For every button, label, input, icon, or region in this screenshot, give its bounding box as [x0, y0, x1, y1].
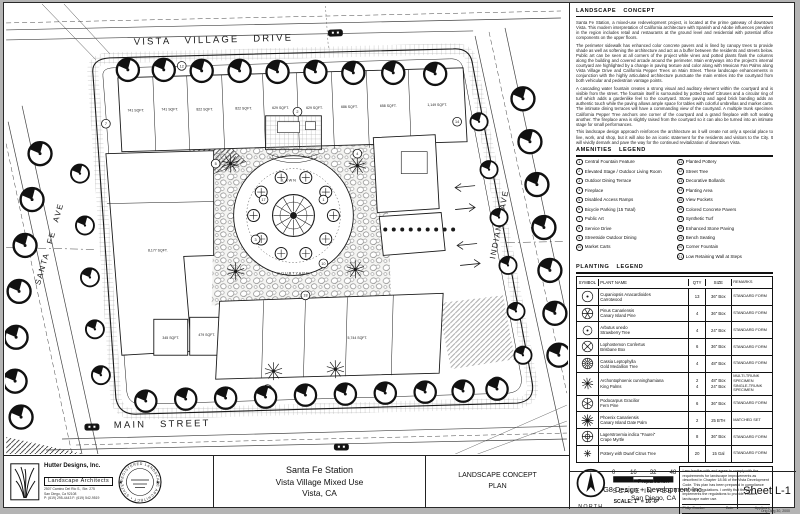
street-tree-icon [514, 347, 531, 364]
legend-item: 15View Pockets [677, 197, 773, 203]
plant-name: Cassia Leptophylla Gold Medallion Tree [599, 356, 690, 372]
legend-number: 12 [677, 168, 684, 175]
drawing-sheet: VISTA VILLAGE DRIVE SANTA FE AVE INDIANA… [3, 2, 795, 508]
firm-text: Hutter Designs, Inc. Landscape Architect… [44, 463, 113, 500]
planting-legend-section: PLANTING LEGEND SYMBOLPLANT NAMEQTYSIZER… [576, 264, 773, 462]
legend-number: 2 [576, 168, 583, 175]
legend-label: Central Fountain Feature [585, 159, 635, 164]
plant-qty: 13 [689, 289, 706, 305]
legend-label: Decorative Bollards [686, 178, 725, 183]
plant-size: 24" Box [706, 322, 732, 338]
street-tree-icon [375, 382, 396, 403]
concept-paragraph: A cascading water fountain creates a str… [576, 86, 773, 127]
plant-name: Arbutus unedo Strawberry Tree [599, 322, 690, 338]
amenities-column-right: 11Planted Pottery12Street Tree13Decorati… [677, 159, 773, 263]
plant-remarks: STANDARD FORM [732, 339, 772, 355]
legend-label: View Pockets [686, 197, 713, 202]
planting-title: PLANTING LEGEND [576, 264, 773, 270]
sqft-label: 822 SQFT. [196, 108, 213, 112]
sqft-label: 741 SQFT. [161, 108, 178, 112]
legend-number: 11 [677, 159, 684, 166]
street-tree-icon [92, 366, 110, 384]
legend-label: Elevated Stage / Outdoor Living Room [585, 169, 662, 174]
plant-remarks: STANDARD FORM [732, 289, 772, 305]
street-tree-icon [5, 326, 28, 349]
amenities-title: AMENITIES LEGEND [576, 147, 773, 153]
legend-item: 3Outdoor Dining Terrace [576, 178, 672, 184]
street-tree-icon [543, 302, 566, 325]
planting-table: SYMBOLPLANT NAMEQTYSIZEREMARKS Cupaniops… [576, 276, 773, 462]
street-tree-icon [117, 59, 139, 81]
street-tree-icon [382, 62, 404, 84]
legend-number: 21 [677, 253, 684, 260]
street-tree-icon [304, 61, 326, 83]
legend-label: Service Drive [585, 226, 612, 231]
legend-label: Planted Pottery [686, 159, 717, 164]
sqft-label: 5,744 SQFT. [348, 336, 368, 340]
plant-remarks: MULTI-TRUNK SPECIMEN SINGLE-TRUNK SPECIM… [732, 373, 772, 395]
project-subtitle: Vista Village Mixed Use [276, 477, 364, 489]
street-label-top: VISTA VILLAGE DRIVE [134, 32, 294, 47]
drawing-title-section: LANDSCAPE CONCEPT PLAN [425, 456, 569, 508]
legend-number: 16 [677, 206, 684, 213]
legend-number: 5 [576, 197, 583, 204]
project-name: Santa Fe Station [286, 464, 353, 477]
street-label-left: SANTA FE AVE [33, 202, 65, 286]
legend-item: 11Planted Pottery [677, 159, 773, 165]
site-plan-svg: VISTA VILLAGE DRIVE SANTA FE AVE INDIANA… [5, 4, 568, 454]
planting-row: Cassia Leptophylla Gold Medallion Tree44… [577, 355, 772, 372]
svg-text:17: 17 [261, 198, 265, 202]
legend-number: 8 [576, 225, 583, 232]
legend-number: 10 [576, 244, 583, 251]
title-block-right: Prepared for: G8 Design + Development In… [569, 471, 796, 509]
street-tree-icon [532, 216, 555, 239]
legend-label: Corner Fountain [686, 244, 719, 249]
client-section: Prepared for: G8 Design + Development In… [570, 472, 738, 509]
legend-label: Public Art [585, 216, 604, 221]
svg-text:4: 4 [356, 152, 358, 156]
legend-item: 8Service Drive [576, 226, 672, 232]
street-tree-icon [135, 390, 156, 411]
sqft-label: 822 SQFT. [235, 107, 252, 111]
planting-row: Pottery with Dwarf Citrus Tree2015 GalST… [577, 445, 772, 462]
plant-size: 48" Box [706, 356, 732, 372]
street-tree-icon [295, 384, 316, 405]
svg-text:REGISTERED LANDSCAPE ARCHITECT: REGISTERED LANDSCAPE ARCHITECT • STATE O… [120, 462, 160, 502]
plant-symbol-icon [577, 429, 599, 445]
planting-header-cell: QTY [689, 279, 706, 287]
plant-size: 15 Gal [706, 446, 732, 462]
plant-size: 36" Box [706, 429, 732, 445]
planting-row: Archontophoenix cunninghamiana King Palm… [577, 372, 772, 395]
street-tree-icon [215, 387, 236, 408]
plant-size: 36" Box [706, 396, 732, 412]
plant-size: 36" Box [706, 339, 732, 355]
plant-qty: 4 [689, 356, 706, 372]
plant-remarks: STANDARD FORM [732, 429, 772, 445]
legend-item: 20Corner Fountain [677, 244, 773, 250]
legend-label: Fireplace [585, 188, 604, 193]
svg-text:7: 7 [105, 122, 107, 126]
amenities-legend-section: AMENITIES LEGEND 1Central Fountain Featu… [576, 147, 773, 263]
legend-label: Outdoor Dining Terrace [585, 178, 631, 183]
plant-symbol-icon [577, 306, 599, 322]
plant-size: 36" Box [706, 289, 732, 305]
street-tree-icon [191, 60, 213, 82]
project-title-section: Santa Fe Station Vista Village Mixed Use… [213, 456, 425, 508]
legend-number: 19 [677, 235, 684, 242]
planting-header-cell: REMARKS [732, 279, 772, 287]
sheet-number: Sheet L-1 [738, 472, 796, 509]
sqft-label: 686 SQFT. [341, 105, 358, 109]
legend-number: 6 [576, 206, 583, 213]
plant-qty: 6 [689, 396, 706, 412]
street-tree-icon [29, 142, 52, 165]
street-tree-icon [266, 61, 288, 83]
street-tree-icon [5, 370, 27, 393]
street-tree-icon [547, 344, 568, 367]
rule [576, 16, 773, 18]
courtyard-label: COURTYARD [277, 271, 310, 275]
street-tree-icon [153, 59, 175, 81]
svg-text:1: 1 [322, 198, 324, 202]
legend-item: 1Central Fountain Feature [576, 159, 672, 165]
legend-item: 13Decorative Bollards [677, 178, 773, 184]
plant-qty: 2 4 [689, 373, 706, 395]
plant-qty: 8 [689, 429, 706, 445]
sqft-label: 658 SQFT. [380, 104, 397, 108]
legend-item: 10Market Carts [576, 244, 672, 250]
svg-text:18: 18 [303, 294, 307, 298]
parking-hatch [6, 437, 84, 454]
plant-name: Lagerstroemia indica "Faurei" Crape Myrt… [599, 429, 690, 445]
legend-number: 14 [677, 187, 684, 194]
legend-item: 12Street Tree [677, 169, 773, 175]
street-tree-icon [10, 406, 33, 429]
plant-remarks: STANDARD FORM [732, 356, 772, 372]
svg-text:14: 14 [455, 120, 459, 124]
project-location: Vista, CA [302, 488, 337, 500]
street-tree-icon [21, 188, 44, 211]
rule [576, 155, 773, 157]
legend-item: 7Public Art [576, 216, 672, 222]
client-name: G8 Design + Development Inc. [603, 485, 704, 495]
plant-symbol-icon [577, 412, 599, 428]
legend-number: 7 [576, 216, 583, 223]
planting-row: Phoenix Canariensis Canary Island Date P… [577, 411, 772, 428]
street-tree-icon [490, 209, 507, 226]
street-tree-icon [229, 60, 251, 82]
legend-number: 3 [576, 178, 583, 185]
sqft-label: 629 SQFT. [306, 106, 323, 110]
sqft-label: 8,177 SQFT. [148, 248, 168, 252]
sqft-label: 1,149 SQFT. [427, 103, 447, 107]
plant-size: 25 BTH [706, 412, 732, 428]
legend-label: Street Tree [686, 169, 708, 174]
street-tree-icon [470, 113, 487, 130]
legend-number: 13 [677, 178, 684, 185]
sqft-label: 741 SQFT. [128, 109, 145, 113]
street-tree-icon [76, 216, 94, 234]
concept-paragraph: This landscape design approach reinforce… [576, 129, 773, 144]
plant-name: Archontophoenix cunninghamiana King Palm… [599, 373, 690, 395]
legend-item: 18Enhanced Stone Paving [677, 226, 773, 232]
firm-address: 2507 Camino Del Rio S., Ste. 275 San Die… [44, 487, 113, 500]
legend-label: Bicycle Parking (15 Total) [585, 207, 636, 212]
scanned-plan-sheet: { "plan": { "streets": { "top": "VISTA V… [0, 0, 800, 514]
sqft-label: 345 SQFT. [162, 336, 179, 340]
plant-remarks: STANDARD FORM [732, 306, 772, 322]
planting-header-cell: PLANT NAME [599, 279, 690, 287]
svg-text:10: 10 [321, 262, 325, 266]
legend-number: 9 [576, 235, 583, 242]
planting-row: Podocarpus Gracilior Fern Pine636" BoxST… [577, 395, 772, 412]
plant-symbol-icon [577, 373, 599, 395]
se-paving-hatch [437, 295, 515, 369]
sqft-label: 479 SQFT. [198, 333, 215, 337]
plant-symbol-icon [577, 322, 599, 338]
street-tree-icon [486, 378, 507, 399]
street-label-bottom: MAIN STREET [114, 418, 211, 431]
notes-panel: LANDSCAPE CONCEPT Santa Fe Station, a mi… [569, 3, 796, 471]
street-tree-icon [342, 62, 364, 84]
legend-label: Disabled Access Ramps [585, 197, 634, 202]
street-tree-icon [518, 130, 541, 153]
plant-remarks: STANDARD FORM [732, 446, 772, 462]
svg-text:12: 12 [180, 64, 184, 68]
drawing-title-line1: LANDSCAPE CONCEPT [458, 471, 537, 482]
street-tree-icon [538, 259, 561, 282]
plant-remarks: STANDARD FORM [732, 322, 772, 338]
title-block-left: Hutter Designs, Inc. Landscape Architect… [4, 455, 569, 508]
legend-label: Streetside Outdoor Dining [585, 235, 637, 240]
legend-item: 19Bench Seating [677, 235, 773, 241]
street-tree-icon [71, 165, 89, 183]
plant-qty: 20 [689, 446, 706, 462]
plant-symbol-icon [577, 446, 599, 462]
legend-item: 6Bicycle Parking (15 Total) [576, 207, 672, 213]
plant-qty: 6 [689, 339, 706, 355]
street-tree-icon [81, 268, 99, 286]
legend-label: Market Carts [585, 244, 611, 249]
license-stamp-icon: REGISTERED LANDSCAPE ARCHITECT • STATE O… [117, 459, 163, 505]
legend-number: 1 [576, 159, 583, 166]
legend-number: 15 [677, 197, 684, 204]
legend-item: 9Streetside Outdoor Dining [576, 235, 672, 241]
plant-name: Pottery with Dwarf Citrus Tree [599, 446, 690, 462]
legend-item: 4Fireplace [576, 188, 672, 194]
plant-name: Phoenix Canariensis Canary Island Date P… [599, 412, 690, 428]
planting-header-cell: SIZE [706, 279, 732, 287]
landscape-concept-section: LANDSCAPE CONCEPT Santa Fe Station, a mi… [576, 8, 773, 145]
legend-item: 14Planting Area [677, 188, 773, 194]
street-tree-icon [175, 388, 196, 409]
original-drawing-note: Orig Dwg 30, 2000 [761, 509, 790, 513]
planting-row: Lophostemon Confertus Brisbane Box636" B… [577, 338, 772, 355]
legend-label: Planting Area [686, 188, 713, 193]
planting-row: Lagerstroemia indica "Faurei" Crape Myrt… [577, 428, 772, 445]
svg-text:3: 3 [255, 238, 257, 242]
plant-size: 36" Box [706, 306, 732, 322]
svg-text:5: 5 [215, 162, 217, 166]
planting-row: Pinus Canariensis Canary Island Pine436"… [577, 305, 772, 322]
amenities-column-left: 1Central Fountain Feature2Elevated Stage… [576, 159, 672, 263]
planting-header-cell: SYMBOL [577, 279, 599, 287]
street-tree-icon [255, 386, 276, 407]
client-location: San Diego, CA [631, 495, 676, 502]
legend-number: 4 [576, 187, 583, 194]
legend-label: Enhanced Stone Paving [686, 226, 734, 231]
plant-remarks: STANDARD FORM [732, 396, 772, 412]
legend-number: 18 [677, 225, 684, 232]
firm-name: Hutter Designs, Inc. [44, 463, 113, 469]
street-tree-icon [452, 380, 473, 401]
street-tree-icon [424, 63, 446, 85]
plant-name: Podocarpus Gracilior Fern Pine [599, 396, 690, 412]
legend-item: 21Low Retaining Wall at Steps [677, 254, 773, 260]
site-plan: VISTA VILLAGE DRIVE SANTA FE AVE INDIANA… [5, 4, 568, 454]
firm-type: Landscape Architects [44, 477, 113, 486]
firm-section: Hutter Designs, Inc. Landscape Architect… [4, 456, 213, 508]
legend-item: 17Synthetic Turf [677, 216, 773, 222]
street-tree-icon [525, 173, 548, 196]
plant-qty: 2 [689, 412, 706, 428]
rule [576, 272, 773, 274]
street-tree-icon [335, 383, 356, 404]
legend-label: Low Retaining Wall at Steps [686, 254, 742, 259]
street-tree-icon [507, 303, 524, 320]
planting-row: Arbutus unedo Strawberry Tree424" BoxSTA… [577, 321, 772, 338]
concept-paragraph: The perimeter sidewalk has enhanced colo… [576, 43, 773, 84]
planting-row: Cupaniopsis Anacardioides Carrotwood1336… [577, 288, 772, 305]
plant-name: Pinus Canariensis Canary Island Pine [599, 306, 690, 322]
legend-label: Synthetic Turf [686, 216, 714, 221]
street-tree-icon [415, 381, 436, 402]
plant-remarks: MATCHED SET [732, 412, 772, 428]
legend-number: 17 [677, 216, 684, 223]
plant-symbol-icon [577, 396, 599, 412]
plant-qty: 4 [689, 306, 706, 322]
plant-symbol-icon [577, 356, 599, 372]
legend-number: 20 [677, 244, 684, 251]
svg-text:2: 2 [296, 110, 298, 114]
firm-logo-icon [10, 463, 40, 501]
plant-symbol-icon [577, 289, 599, 305]
concept-title: LANDSCAPE CONCEPT [576, 8, 773, 14]
drawing-title-line2: PLAN [488, 482, 506, 493]
legend-item: 16Colored Concrete Pavers [677, 207, 773, 213]
legend-item: 2Elevated Stage / Outdoor Living Room [576, 169, 672, 175]
sqft-label: 629 SQFT. [272, 106, 289, 110]
legend-item: 5Disabled Access Ramps [576, 197, 672, 203]
plant-size: 48" Box 24" Box [706, 373, 732, 395]
courtyard-label: LAWN [282, 179, 297, 183]
bollard-dots [383, 228, 455, 232]
svg-text:★: ★ [119, 480, 124, 486]
plant-symbol-icon [577, 339, 599, 355]
street-tree-icon [480, 161, 497, 178]
legend-label: Bench Seating [686, 235, 715, 240]
concept-paragraph: Santa Fe Station, a mixed-use redevelopm… [576, 20, 773, 40]
legend-label: Colored Concrete Pavers [686, 207, 737, 212]
street-tree-icon [512, 87, 535, 110]
plant-name: Cupaniopsis Anacardioides Carrotwood [599, 289, 690, 305]
planting-table-header: SYMBOLPLANT NAMEQTYSIZEREMARKS [577, 277, 772, 288]
street-tree-icon [8, 280, 31, 303]
street-tree-icon [14, 234, 37, 257]
plant-qty: 4 [689, 322, 706, 338]
street-tree-icon [86, 320, 104, 338]
street-tree-icon [499, 257, 516, 274]
svg-text:★: ★ [156, 480, 161, 486]
plant-name: Lophostemon Confertus Brisbane Box [599, 339, 690, 355]
